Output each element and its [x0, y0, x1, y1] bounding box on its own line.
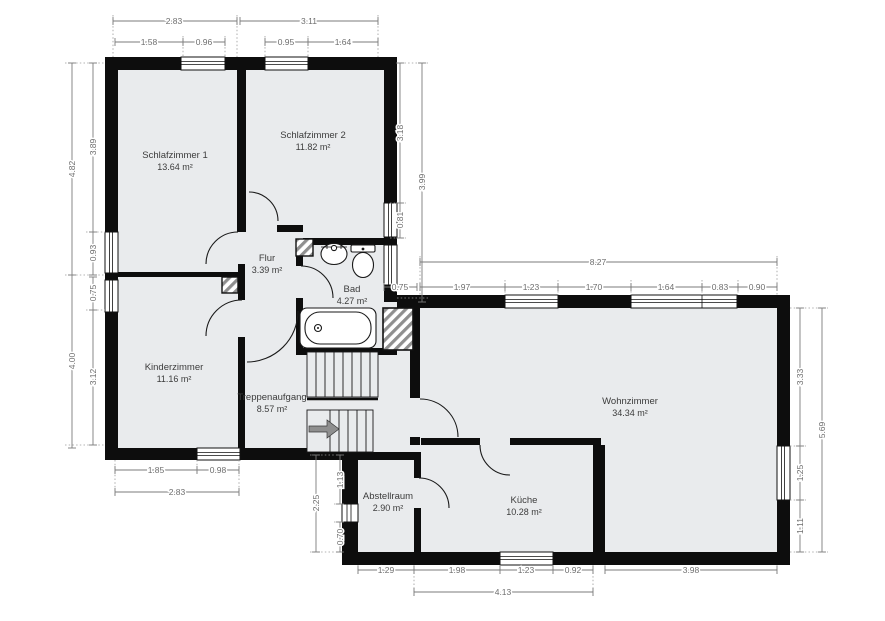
dim-label: 0.92 [565, 565, 582, 575]
room-label-abstellraum: Abstellraum [363, 491, 413, 502]
dim-label: 0.81 [395, 211, 405, 228]
dim-label: 1.25 [795, 464, 805, 481]
window-schlafzimmer1-top [181, 57, 225, 70]
dim-label: 4.00 [67, 352, 77, 369]
room-area-kinderzimmer: 11.16 m² [157, 374, 192, 384]
floor-plan: 2.83 3.11 1.58 0.96 0.95 1.64 4.82 3.89 … [0, 0, 885, 621]
window-left-upper [105, 232, 118, 273]
window-wohnzimmer-right [777, 446, 790, 500]
stair-flight-upper [307, 352, 378, 397]
dim-label: 1.85 [148, 465, 165, 475]
dim-label: 1.70 [586, 282, 603, 292]
chimney-bad [296, 239, 313, 256]
room-label-bad: Bad [344, 284, 361, 295]
dim-label: 0.95 [278, 37, 295, 47]
dim-label: 8.27 [590, 257, 607, 267]
dim-label: 0.93 [88, 244, 98, 261]
dim-label: 0.70 [335, 528, 345, 545]
room-area-kueche: 10.28 m² [506, 507, 542, 517]
dim-label: 1.64 [658, 282, 675, 292]
chimney-large [383, 308, 413, 350]
dim-label: 3.89 [88, 138, 98, 155]
room-area-treppenaufgang: 8.57 m² [257, 404, 288, 414]
dim-label: 0.90 [749, 282, 766, 292]
room-label-kinderzimmer: Kinderzimmer [145, 362, 204, 373]
room-label-schlafzimmer1: Schlafzimmer 1 [142, 150, 207, 161]
dim-label: 1.64 [335, 37, 352, 47]
dim-label: 3.98 [683, 565, 700, 575]
window-kinderzimmer-bottom [197, 448, 240, 460]
room-label-treppenaufgang: Treppenaufgang [237, 392, 306, 403]
toilet [351, 245, 375, 278]
dim-label: 3.33 [795, 368, 805, 385]
dim-label: 0.75 [392, 282, 409, 292]
dim-label: 0.98 [210, 465, 227, 475]
window-wohnzimmer-top-2 [631, 295, 737, 308]
dim-label: 4.13 [495, 587, 512, 597]
room-area-abstellraum: 2.90 m² [373, 503, 404, 513]
room-label-schlafzimmer2: Schlafzimmer 2 [280, 130, 345, 141]
room-label-flur: Flur [259, 253, 275, 264]
dim-label: 1.29 [378, 565, 395, 575]
dim-label: 0.96 [196, 37, 213, 47]
window-bad-right [384, 245, 397, 285]
dim-label: 1.23 [523, 282, 540, 292]
room-area-bad: 4.27 m² [337, 296, 368, 306]
dim-label: 1.23 [518, 565, 535, 575]
dim-label: 1.97 [454, 282, 471, 292]
window-wohnzimmer-top-1 [505, 295, 558, 308]
window-abstellraum-left [342, 504, 358, 522]
window-left-lower [105, 280, 118, 312]
room-floors [105, 57, 790, 565]
room-area-schlafzimmer1: 13.64 m² [157, 162, 193, 172]
room-area-flur: 3.39 m² [252, 265, 283, 275]
dim-label: 1.11 [795, 518, 805, 534]
dim-label: 0.83 [712, 282, 729, 292]
chimney-flur [222, 277, 238, 293]
dim-label: 1.13 [335, 471, 345, 488]
room-label-wohnzimmer: Wohnzimmer [602, 396, 658, 407]
sink [321, 244, 347, 265]
room-area-schlafzimmer2: 11.82 m² [296, 142, 331, 152]
dim-label: 4.82 [67, 160, 77, 177]
dim-label: 1.58 [141, 37, 158, 47]
dim-label: 2.25 [311, 494, 321, 511]
dim-label: 3.11 [301, 16, 317, 26]
dim-label: 3.12 [88, 368, 98, 385]
floor-plan-drawing: 2.83 3.11 1.58 0.96 0.95 1.64 4.82 3.89 … [0, 0, 885, 621]
room-label-kueche: Küche [511, 495, 538, 506]
dim-label: 1.98 [449, 565, 466, 575]
dim-label: 2.83 [169, 487, 186, 497]
dim-label: 3.99 [417, 173, 427, 190]
room-area-wohnzimmer: 34.34 m² [612, 408, 648, 418]
dim-label: 0.75 [88, 284, 98, 301]
dim-label: 5.69 [817, 421, 827, 438]
bathtub [300, 308, 376, 348]
window-kueche-bottom [500, 552, 553, 565]
dim-label: 2.83 [166, 16, 183, 26]
dim-label: 3.18 [395, 124, 405, 141]
window-schlafzimmer2-top [265, 57, 308, 70]
